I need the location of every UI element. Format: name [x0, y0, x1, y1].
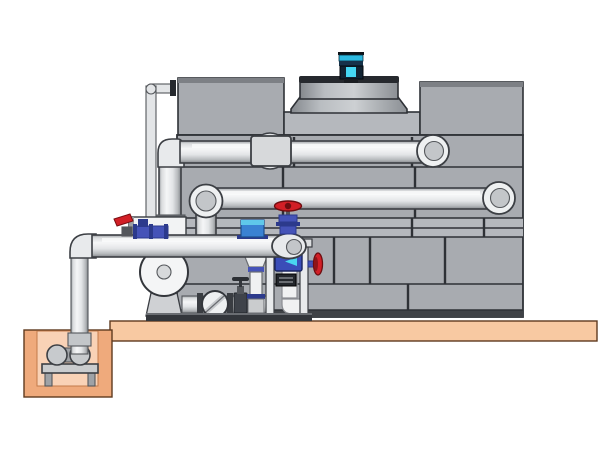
middle-pipe-left-elbow-bore	[196, 191, 216, 211]
concrete-platform	[110, 321, 597, 341]
fan-motor-top-band	[339, 55, 363, 61]
fan-motor-mid-band	[339, 61, 363, 66]
top-pipe-right-elbow-bore	[425, 142, 444, 161]
drain-gate-valve-bonnet	[237, 286, 244, 294]
sump-pump-cylinder	[47, 345, 67, 365]
fan-motor-stem	[344, 79, 358, 83]
gate-valve-flange	[276, 222, 300, 226]
thin-pipe-elbow-cap	[146, 84, 156, 94]
junction-box-slot	[279, 281, 293, 283]
ground	[24, 321, 597, 397]
fan-deck-band	[284, 112, 420, 135]
flow-meter-top-band	[241, 220, 264, 225]
sensor-fitting-flange	[149, 224, 153, 239]
tower-upper-right-cap	[420, 82, 523, 87]
sensor-fitting-flange	[133, 224, 137, 239]
fan-motor-window	[346, 67, 356, 77]
middle-pipe-right-elbow-bore	[491, 189, 510, 208]
pipe-highlight	[218, 191, 480, 195]
fan-assembly	[291, 52, 407, 113]
discharge-end-elbow-bore	[287, 240, 302, 255]
sensor-fitting-flange	[164, 224, 168, 239]
sump-pump-leg	[88, 372, 95, 386]
pump-volute-hub	[157, 265, 171, 279]
top-pipe-sleeve-coupling	[251, 136, 291, 166]
sample-valve-body	[122, 227, 132, 236]
fan-motor-cap	[338, 52, 364, 55]
side-handwheel-hub	[314, 257, 318, 271]
strainer-drop-pipe	[250, 272, 262, 296]
tower-upper-left-box	[178, 78, 284, 135]
drain-gate-valve-body	[234, 293, 247, 313]
gate-valve-hub	[285, 203, 291, 209]
junction-box	[276, 274, 296, 286]
thin-pipe-flange	[170, 80, 176, 96]
strainer-lower-flange	[247, 294, 265, 299]
thin-pipe-body	[146, 86, 156, 232]
sump-riser-pipe	[68, 254, 91, 354]
sump-pump-plate	[42, 364, 98, 373]
pipe-highlight	[192, 144, 418, 148]
gate-valve-body	[280, 226, 296, 234]
skid-base-rail-highlight	[146, 313, 312, 315]
diagram-canvas	[0, 0, 600, 450]
tower-upper-left-cap	[178, 78, 284, 83]
skid-base	[146, 313, 312, 321]
piping-diagram	[0, 0, 600, 450]
tower-upper-right-block	[420, 82, 523, 135]
sensor-head	[138, 219, 148, 227]
gate-valve-bonnet	[279, 215, 297, 222]
riser-pipe-coupling	[68, 333, 91, 346]
drain-gate-valve-handle	[232, 277, 249, 281]
strainer-tee	[248, 299, 264, 313]
junction-box-slot	[279, 277, 293, 279]
sump-pump-leg	[45, 372, 52, 386]
strainer-band	[248, 267, 264, 272]
